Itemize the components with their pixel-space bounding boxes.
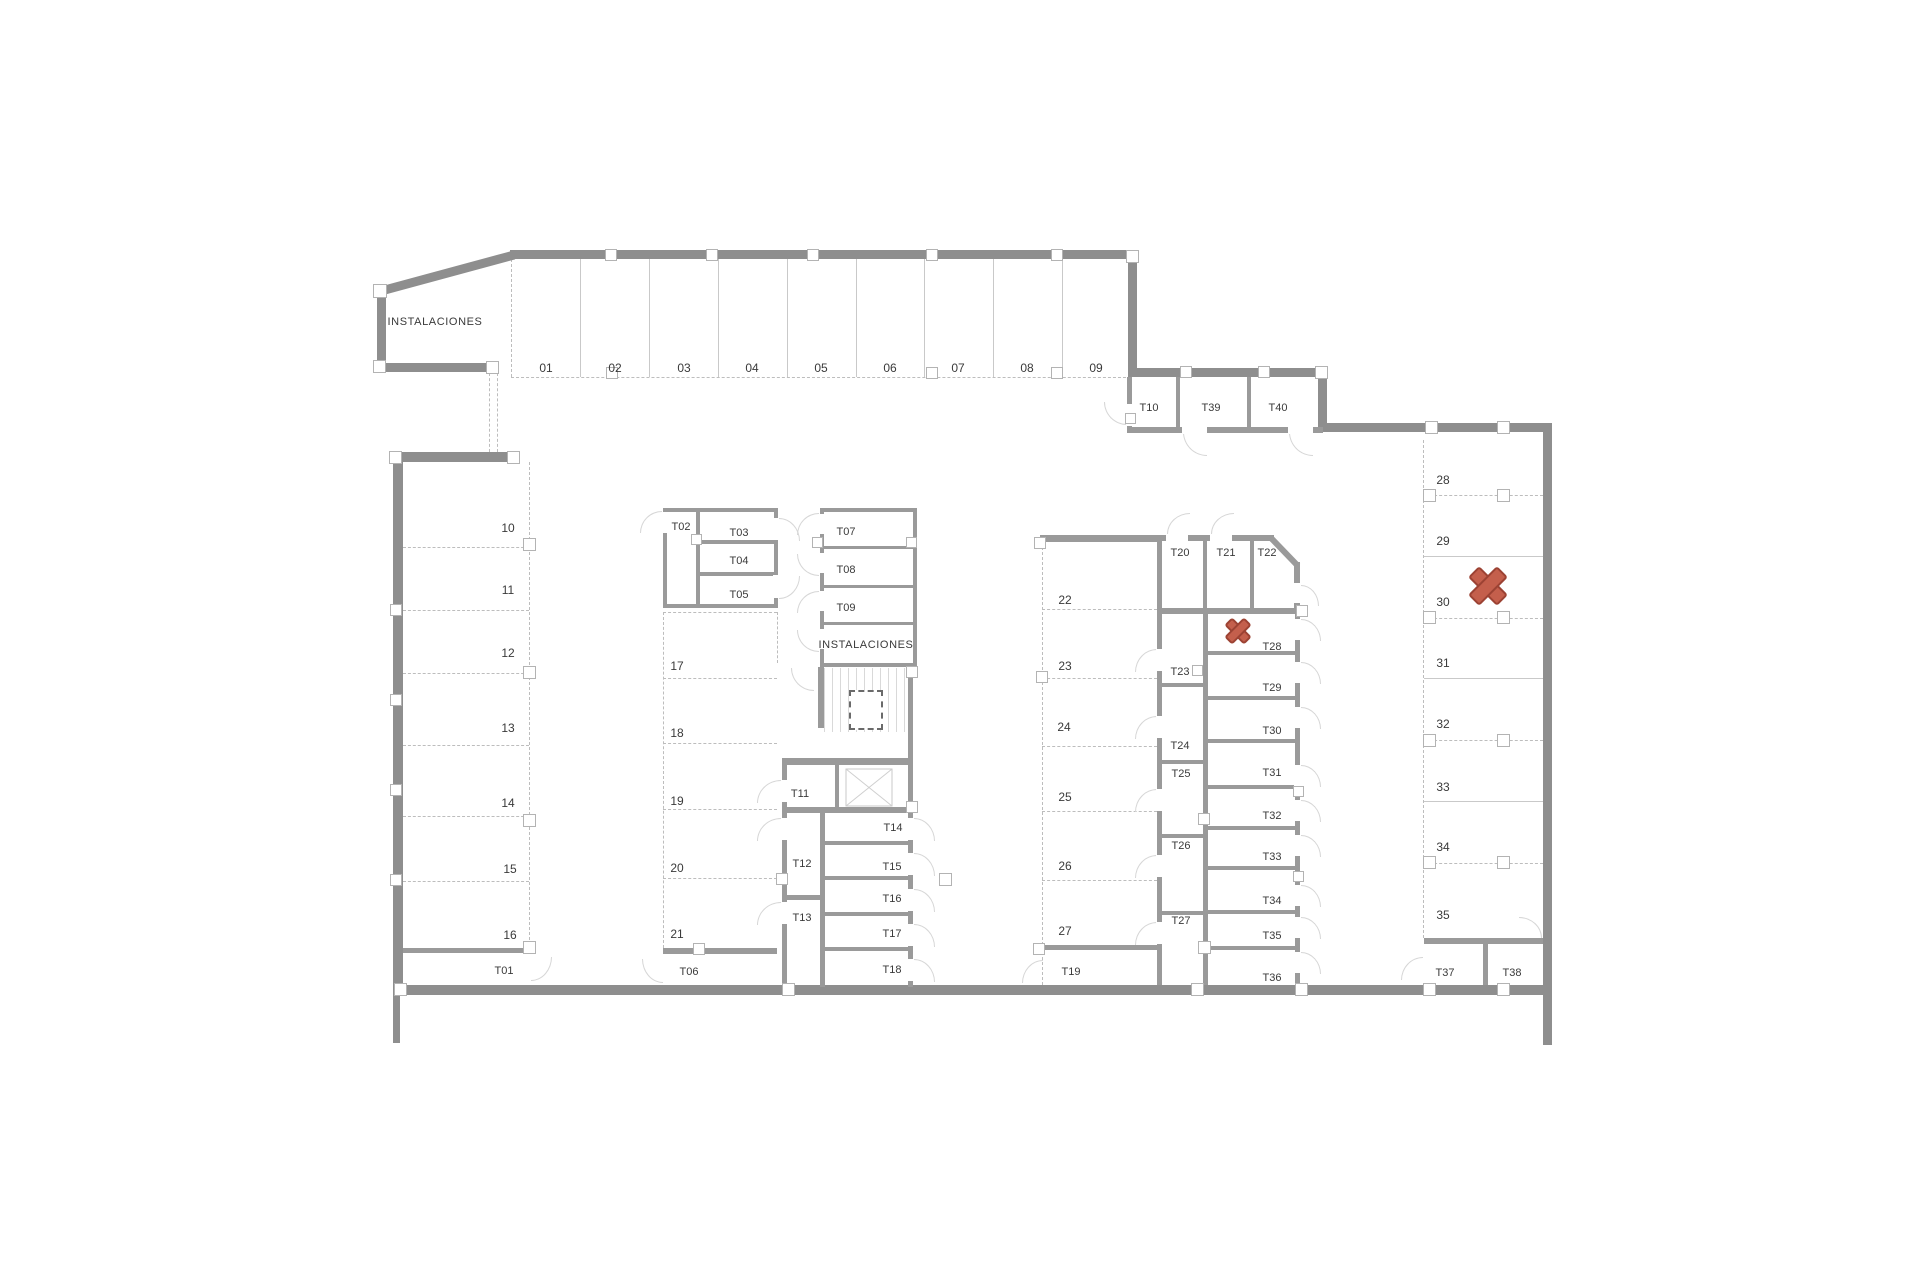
parking-space-label: 21 [670,927,683,941]
parking-space-label: 16 [503,928,516,942]
column-marker [1051,367,1063,379]
storage-unit-label: T27 [1172,915,1191,927]
partition-wall [782,807,913,813]
door-arc [1301,885,1321,907]
door-arc [914,853,935,876]
parking-space-label: 28 [1436,473,1449,487]
parking-space-label: 10 [501,521,514,535]
door-gap [1294,800,1301,821]
column-marker [1198,941,1211,954]
door-arc [1022,960,1043,983]
door-gap [1294,662,1301,683]
column-marker [926,249,938,261]
column-marker [1036,671,1048,683]
column-marker [1126,250,1139,263]
wall-diagonal [381,255,514,291]
door-gap [1156,855,1163,877]
partition-wall [823,585,913,588]
x-marker-icon [1465,563,1511,609]
parking-space-label: 30 [1436,595,1449,609]
parking-space-label: 03 [677,361,690,375]
column-marker [390,694,402,706]
partition-wall [1208,826,1295,830]
column-marker [939,873,952,886]
partition-wall [782,758,913,765]
storage-unit-label: T30 [1263,725,1282,737]
door-gap [907,959,914,981]
parking-space-label: 26 [1058,859,1071,873]
dashed-divider [663,678,777,679]
dashed-boundary [497,373,498,452]
dashed-divider [1042,880,1157,881]
column-marker [1198,813,1210,825]
storage-unit-label: T02 [672,521,691,533]
column-marker [1497,489,1510,502]
storage-unit-label: T40 [1269,402,1288,414]
door-gap [819,514,825,534]
door-arc [914,818,935,841]
storage-unit-label: T35 [1263,930,1282,942]
partition-wall [823,546,913,549]
column-marker [691,534,702,545]
parking-space-label: 23 [1058,659,1071,673]
column-marker [390,604,402,616]
column-marker [523,538,536,551]
door-gap [781,780,788,802]
column-marker [1051,249,1063,261]
storage-unit-label: T07 [837,526,856,538]
parking-space-label: 35 [1436,908,1449,922]
column-marker [776,873,788,885]
partition-wall [1208,651,1295,655]
partition-wall [818,667,824,728]
door-arc [914,959,935,982]
storage-unit-label: T21 [1217,547,1236,559]
column-marker [1423,611,1436,624]
column-marker [523,814,536,827]
elevator-symbol [846,769,892,806]
parking-space-label: 08 [1020,361,1033,375]
partition-wall [1208,739,1295,743]
diagonal-walls-overlay [0,0,1920,1280]
parking-space-label: 14 [501,796,514,810]
storage-unit-label: T09 [837,602,856,614]
thin-divider [856,259,857,377]
storage-unit-label: T32 [1263,810,1282,822]
column-marker [1497,611,1510,624]
column-marker [390,784,402,796]
partition-wall [696,508,700,608]
column-marker [1033,943,1045,955]
column-marker [1258,366,1270,378]
partition-wall [700,540,774,544]
dashed-shaft [849,690,883,730]
storage-unit-label: T03 [730,527,749,539]
storage-unit-label: T05 [730,589,749,601]
parking-space-label: 17 [670,659,683,673]
door-arc [757,902,781,925]
parking-space-label: 12 [501,646,514,660]
door-arc [1135,789,1157,812]
door-arc [1135,855,1157,878]
partition-wall [1208,866,1295,870]
door-gap [662,512,668,533]
door-arc [531,957,552,981]
column-marker [523,941,536,954]
door-arc [1301,800,1321,822]
partition-wall [1483,944,1488,985]
door-arc [1301,952,1321,974]
partition-wall [1203,614,1208,985]
partition-wall [1162,760,1203,764]
partition-wall [663,604,778,608]
partition-wall [663,948,777,954]
partition-wall [403,948,530,953]
door-arc [1301,585,1319,606]
thin-divider [1424,556,1543,557]
partition-wall [1162,834,1203,838]
column-marker [1497,856,1510,869]
parking-space-label: 19 [670,794,683,808]
column-marker [1293,871,1304,882]
door-gap [1294,619,1301,640]
storage-unit-label: T38 [1503,967,1522,979]
parking-space-label: 34 [1436,840,1449,854]
column-marker [906,666,918,678]
door-arc [791,668,814,691]
storage-unit-label: T28 [1263,641,1282,653]
door-gap [1210,534,1232,542]
thin-divider [1062,259,1063,377]
column-marker [706,249,718,261]
door-arc [1301,707,1321,729]
parking-space-label: 13 [501,721,514,735]
door-gap [907,924,914,946]
parking-space-label: 09 [1089,361,1102,375]
column-marker [486,361,499,374]
parking-space-label: 18 [670,726,683,740]
column-marker [906,537,917,548]
wall [1128,255,1137,377]
column-marker [1497,734,1510,747]
door-arc [1289,432,1313,456]
dashed-divider [1424,863,1543,864]
door-arc [1301,619,1321,641]
door-gap [819,553,825,573]
column-marker [1423,856,1436,869]
storage-unit-label: T08 [837,564,856,576]
column-marker [926,367,938,379]
column-marker [1423,489,1436,502]
column-marker [373,360,386,373]
dashed-boundary [511,259,512,377]
parking-space-label: 02 [608,361,621,375]
partition-wall [1208,696,1295,700]
column-marker [1295,983,1308,996]
storage-unit-label: T25 [1172,768,1191,780]
door-arc [1401,957,1423,980]
storage-unit-label: T11 [791,788,809,800]
door-gap [1166,534,1188,542]
wall [377,287,386,370]
parking-space-label: 22 [1058,593,1071,607]
storage-unit-label: T31 [1263,767,1282,779]
parking-space-label: 04 [745,361,758,375]
column-marker [507,451,520,464]
parking-space-label: 11 [502,583,514,597]
door-arc [914,889,935,912]
parking-space-label: 24 [1057,720,1070,734]
column-marker [782,983,795,996]
parking-space-label: 07 [951,361,964,375]
door-arc [797,591,819,613]
door-gap [1156,922,1163,944]
dashed-boundary [777,612,778,663]
door-arc [1301,662,1321,684]
door-arc [757,818,781,841]
column-marker [1315,366,1328,379]
storage-unit-label: T26 [1172,840,1191,852]
column-marker [390,874,402,886]
column-marker [523,666,536,679]
storage-unit-label: T17 [883,928,902,940]
partition-wall [700,572,774,576]
wall [1543,430,1552,1045]
door-gap [1294,952,1301,973]
thin-divider [649,259,650,377]
door-gap [907,889,914,911]
thin-divider [787,259,788,377]
partition-wall [913,508,917,667]
column-marker [807,249,819,261]
dashed-divider [403,547,529,548]
column-marker [1293,786,1304,797]
partition-wall [825,912,908,916]
dashed-divider [511,377,1131,378]
wall [393,985,1551,995]
column-marker [1191,983,1204,996]
door-gap [773,575,779,598]
wall [392,452,520,462]
door-gap [781,818,788,840]
storage-unit-label: T12 [793,858,812,870]
door-gap [1294,835,1301,856]
wall [393,462,403,993]
storage-unit-label: T29 [1263,682,1282,694]
thin-divider [718,259,719,377]
column-marker [389,451,402,464]
partition-wall [825,876,908,880]
storage-unit-label: T01 [495,965,514,977]
door-arc [1301,835,1321,857]
door-arc [642,959,663,983]
door-gap [1293,583,1301,603]
door-arc [1135,649,1157,672]
door-arc [1211,513,1234,534]
column-marker [1296,605,1308,617]
elevator-symbol [846,769,892,806]
storage-unit-label: T39 [1202,402,1221,414]
dashed-divider [1042,678,1157,679]
partition-wall [663,508,778,512]
thin-divider [580,259,581,377]
door-arc [779,576,800,599]
wall [377,363,498,372]
elevator-shaft [846,769,892,806]
partition-wall [1162,683,1203,687]
door-arc [1519,917,1542,938]
parking-space-label: 05 [814,361,827,375]
door-arc [1301,765,1321,787]
parking-space-label: 27 [1058,924,1071,938]
column-marker [373,284,387,298]
storage-unit-label: T06 [680,966,699,978]
door-gap [1294,885,1301,906]
door-gap [1294,707,1301,728]
dashed-divider [663,612,777,613]
parking-floor-plan: INSTALACIONES INSTALACIONES 010203040506… [0,0,1920,1280]
dashed-divider [1042,609,1157,610]
partition-wall [820,508,917,512]
parking-space-label: 01 [539,361,552,375]
door-gap [781,902,788,924]
partition-wall [1203,541,1207,608]
door-arc [914,924,935,947]
door-gap [1294,765,1301,786]
storage-unit-label: T10 [1140,402,1159,414]
dashed-divider [663,878,777,879]
storage-unit-label: T04 [730,555,749,567]
partition-wall [1208,785,1295,789]
partition-wall [1176,377,1180,432]
storage-unit-label: T36 [1263,972,1282,984]
dashed-divider [403,816,529,817]
door-arc [1135,716,1157,739]
dashed-divider [1424,618,1543,619]
dashed-divider [403,881,529,882]
storage-unit-label: T37 [1436,967,1455,979]
door-gap [1182,426,1207,434]
door-gap [1156,789,1163,811]
parking-space-label: 15 [503,862,516,876]
storage-unit-label: T15 [883,861,902,873]
instalaciones-room-label: INSTALACIONES [387,316,482,328]
dashed-divider [403,745,529,746]
parking-space-label: 33 [1436,780,1449,794]
thin-divider [1424,801,1543,802]
partition-wall [1208,946,1295,950]
column-marker [1125,413,1136,424]
storage-unit-label: T16 [883,893,902,905]
column-marker [605,249,617,261]
partition-wall [1040,535,1162,542]
thin-divider [1424,678,1543,679]
instalaciones-room-label: INSTALACIONES [818,639,913,651]
door-arc [1104,402,1127,425]
door-arc [1167,513,1190,534]
column-marker [1425,421,1438,434]
thin-divider [924,259,925,377]
partition-wall [908,667,913,812]
column-marker [1180,366,1192,378]
door-arc [797,513,819,535]
dashed-divider [403,610,529,611]
parking-space-label: 06 [883,361,896,375]
door-arc [1301,917,1321,939]
door-arc [757,780,781,803]
door-gap [773,518,779,540]
partition-wall [835,765,839,810]
dashed-divider [663,743,777,744]
door-gap [1294,917,1301,938]
dashed-divider [403,673,529,674]
parking-space-label: 31 [1436,656,1449,670]
partition-wall [1247,377,1251,432]
column-marker [1192,665,1203,676]
door-gap [819,591,825,611]
storage-unit-label: T14 [884,822,903,834]
thin-divider [993,259,994,377]
partition-wall [825,947,908,951]
column-marker [693,943,705,955]
door-gap [907,818,914,840]
dashed-divider [1424,495,1543,496]
partition-wall [825,841,908,845]
door-arc [797,554,819,576]
parking-space-label: 20 [670,861,683,875]
column-marker [812,537,823,548]
partition-wall [1043,945,1160,950]
storage-unit-label: T24 [1171,740,1190,752]
partition-wall [782,895,825,900]
dashed-boundary [663,612,664,948]
door-arc [1135,922,1157,945]
column-marker [1423,983,1436,996]
column-marker [1423,734,1436,747]
dashed-divider [1424,740,1543,741]
partition-wall [1250,541,1254,608]
storage-unit-label: T22 [1258,547,1277,559]
dashed-boundary [489,373,490,452]
dashed-divider [1042,746,1157,747]
door-gap [1288,426,1313,434]
storage-unit-label: T18 [883,964,902,976]
storage-unit-label: T13 [793,912,812,924]
door-arc [797,630,819,652]
door-arc [1183,432,1207,456]
dashed-boundary [529,462,530,950]
dashed-divider [663,809,777,810]
column-marker [1497,421,1510,434]
storage-unit-label: T20 [1171,547,1190,559]
partition-wall [1208,910,1295,914]
column-marker [1497,983,1510,996]
parking-space-label: 25 [1058,790,1071,804]
door-arc [640,511,662,533]
partition-wall [820,663,917,667]
door-gap [1156,649,1163,671]
x-marker-icon [1221,614,1255,648]
storage-unit-label: T19 [1062,966,1081,978]
storage-unit-label: T33 [1263,851,1282,863]
column-marker [906,801,918,813]
door-gap [907,853,914,875]
parking-space-label: 29 [1436,534,1449,548]
wall [1128,368,1327,377]
column-marker [1034,537,1046,549]
door-gap [1156,716,1163,738]
partition-wall [823,622,913,625]
